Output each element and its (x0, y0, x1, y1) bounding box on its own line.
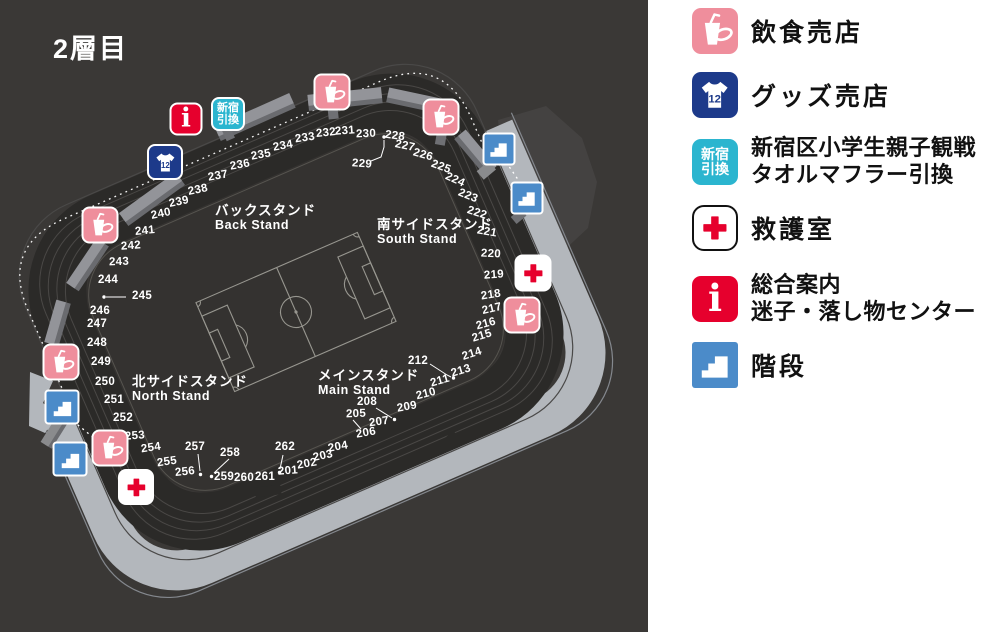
legend-label: 総合案内迷子・落し物センター (751, 272, 976, 326)
stand-label-back-stand: バックスタンドBack Stand (215, 203, 316, 232)
goods-shop-icon: 12 (692, 72, 738, 118)
section-label-262: 262 (275, 441, 295, 453)
section-label-257: 257 (185, 441, 205, 453)
legend-label-line: 飲食売店 (751, 13, 863, 49)
section-label-241: 241 (134, 224, 155, 238)
shinjuku-exchange-icon: 新宿引換 (211, 97, 245, 131)
legend-label-line: 総合案内 (751, 272, 976, 299)
section-label-246: 246 (90, 305, 110, 317)
stairs-icon (53, 442, 88, 477)
stairs-icon (45, 390, 80, 425)
section-label-258: 258 (220, 447, 240, 459)
legend-label: 新宿区小学生親子観戦タオルマフラー引換 (751, 135, 976, 189)
section-label-232: 232 (315, 126, 336, 140)
food-drink-icon (82, 207, 119, 244)
legend-item-goods: 12グッズ売店 (692, 72, 891, 118)
food-drink-icon (314, 74, 351, 111)
legend-item-firstaid: 救護室 (692, 205, 835, 251)
food-drink-icon (504, 297, 541, 334)
section-label-212: 212 (408, 355, 428, 367)
section-label-251: 251 (104, 394, 124, 406)
stairs-icon (511, 182, 544, 215)
section-label-245: 245 (132, 290, 152, 302)
legend-panel: 飲食売店12グッズ売店新宿引換新宿区小学生親子観戦タオルマフラー引換救護室i総合… (648, 0, 1000, 632)
section-label-231: 231 (335, 124, 356, 137)
section-label-261: 261 (255, 471, 275, 483)
section-label-201: 201 (278, 464, 299, 477)
first-aid-icon (692, 205, 738, 251)
page-title: 2層目 (53, 27, 128, 66)
section-label-229: 229 (352, 157, 373, 170)
stand-label-en: Main Stand (318, 383, 419, 397)
stairs-icon (483, 133, 516, 166)
section-label-249: 249 (91, 356, 111, 368)
stairs-icon (692, 342, 738, 388)
legend-label: グッズ売店 (751, 77, 891, 113)
section-label-219: 219 (484, 268, 505, 281)
section-label-247: 247 (87, 318, 107, 330)
section-label-248: 248 (87, 337, 107, 349)
legend-label-line: 迷子・落し物センター (751, 299, 976, 326)
legend-item-shinjuku: 新宿引換新宿区小学生親子観戦タオルマフラー引換 (692, 139, 976, 185)
section-label-228: 228 (384, 129, 406, 144)
section-label-205: 205 (346, 408, 367, 421)
section-label-252: 252 (113, 412, 133, 424)
section-label-243: 243 (109, 256, 130, 269)
shinjuku-exchange-icon: 新宿引換 (692, 139, 738, 185)
section-label-256: 256 (174, 465, 195, 479)
first-aid-icon (118, 469, 154, 505)
legend-label: 救護室 (751, 210, 835, 246)
legend-label: 飲食売店 (751, 13, 863, 49)
food-drink-icon (692, 8, 738, 54)
first-aid-icon (515, 255, 552, 292)
legend-label-line: タオルマフラー引換 (751, 162, 976, 189)
legend-item-food: 飲食売店 (692, 8, 863, 54)
stand-label-en: Back Stand (215, 218, 316, 232)
legend-label-line: 救護室 (751, 210, 835, 246)
information-icon: i (170, 103, 203, 136)
legend-item-stairs: 階段 (692, 342, 807, 388)
svg-text:12: 12 (161, 160, 170, 169)
section-label-242: 242 (121, 239, 142, 252)
section-label-208: 208 (357, 396, 377, 408)
section-label-230: 230 (356, 128, 377, 141)
legend-item-info: i総合案内迷子・落し物センター (692, 276, 976, 322)
stand-label-en: South Stand (377, 232, 493, 246)
section-label-244: 244 (98, 274, 118, 286)
svg-text:12: 12 (709, 94, 722, 106)
stand-label-jp: バックスタンド (215, 203, 316, 218)
stand-label-jp: 北サイドスタンド (132, 374, 248, 389)
food-drink-icon (43, 344, 80, 381)
legend-label-line: 新宿区小学生親子観戦 (751, 135, 976, 162)
section-label-260: 260 (234, 472, 254, 484)
stand-label-jp: メインスタンド (318, 368, 419, 383)
section-label-220: 220 (481, 247, 502, 260)
stadium-map: 2層目 201202203204205206207208209210211212… (0, 0, 648, 632)
stand-label-main-stand: メインスタンドMain Stand (318, 368, 419, 397)
goods-shop-icon: 12 (147, 144, 183, 180)
legend-label: 階段 (751, 347, 807, 383)
section-label-250: 250 (95, 376, 115, 388)
stand-label-south-stand: 南サイドスタンドSouth Stand (377, 217, 493, 246)
food-drink-icon (423, 99, 460, 136)
information-icon: i (692, 276, 738, 322)
stand-label-en: North Stand (132, 389, 248, 403)
stand-label-jp: 南サイドスタンド (377, 217, 493, 232)
stand-label-north-stand: 北サイドスタンドNorth Stand (132, 374, 248, 403)
food-drink-icon (92, 430, 129, 467)
legend-label-line: グッズ売店 (751, 77, 891, 113)
section-label-259: 259 (214, 471, 234, 483)
legend-label-line: 階段 (751, 347, 807, 383)
